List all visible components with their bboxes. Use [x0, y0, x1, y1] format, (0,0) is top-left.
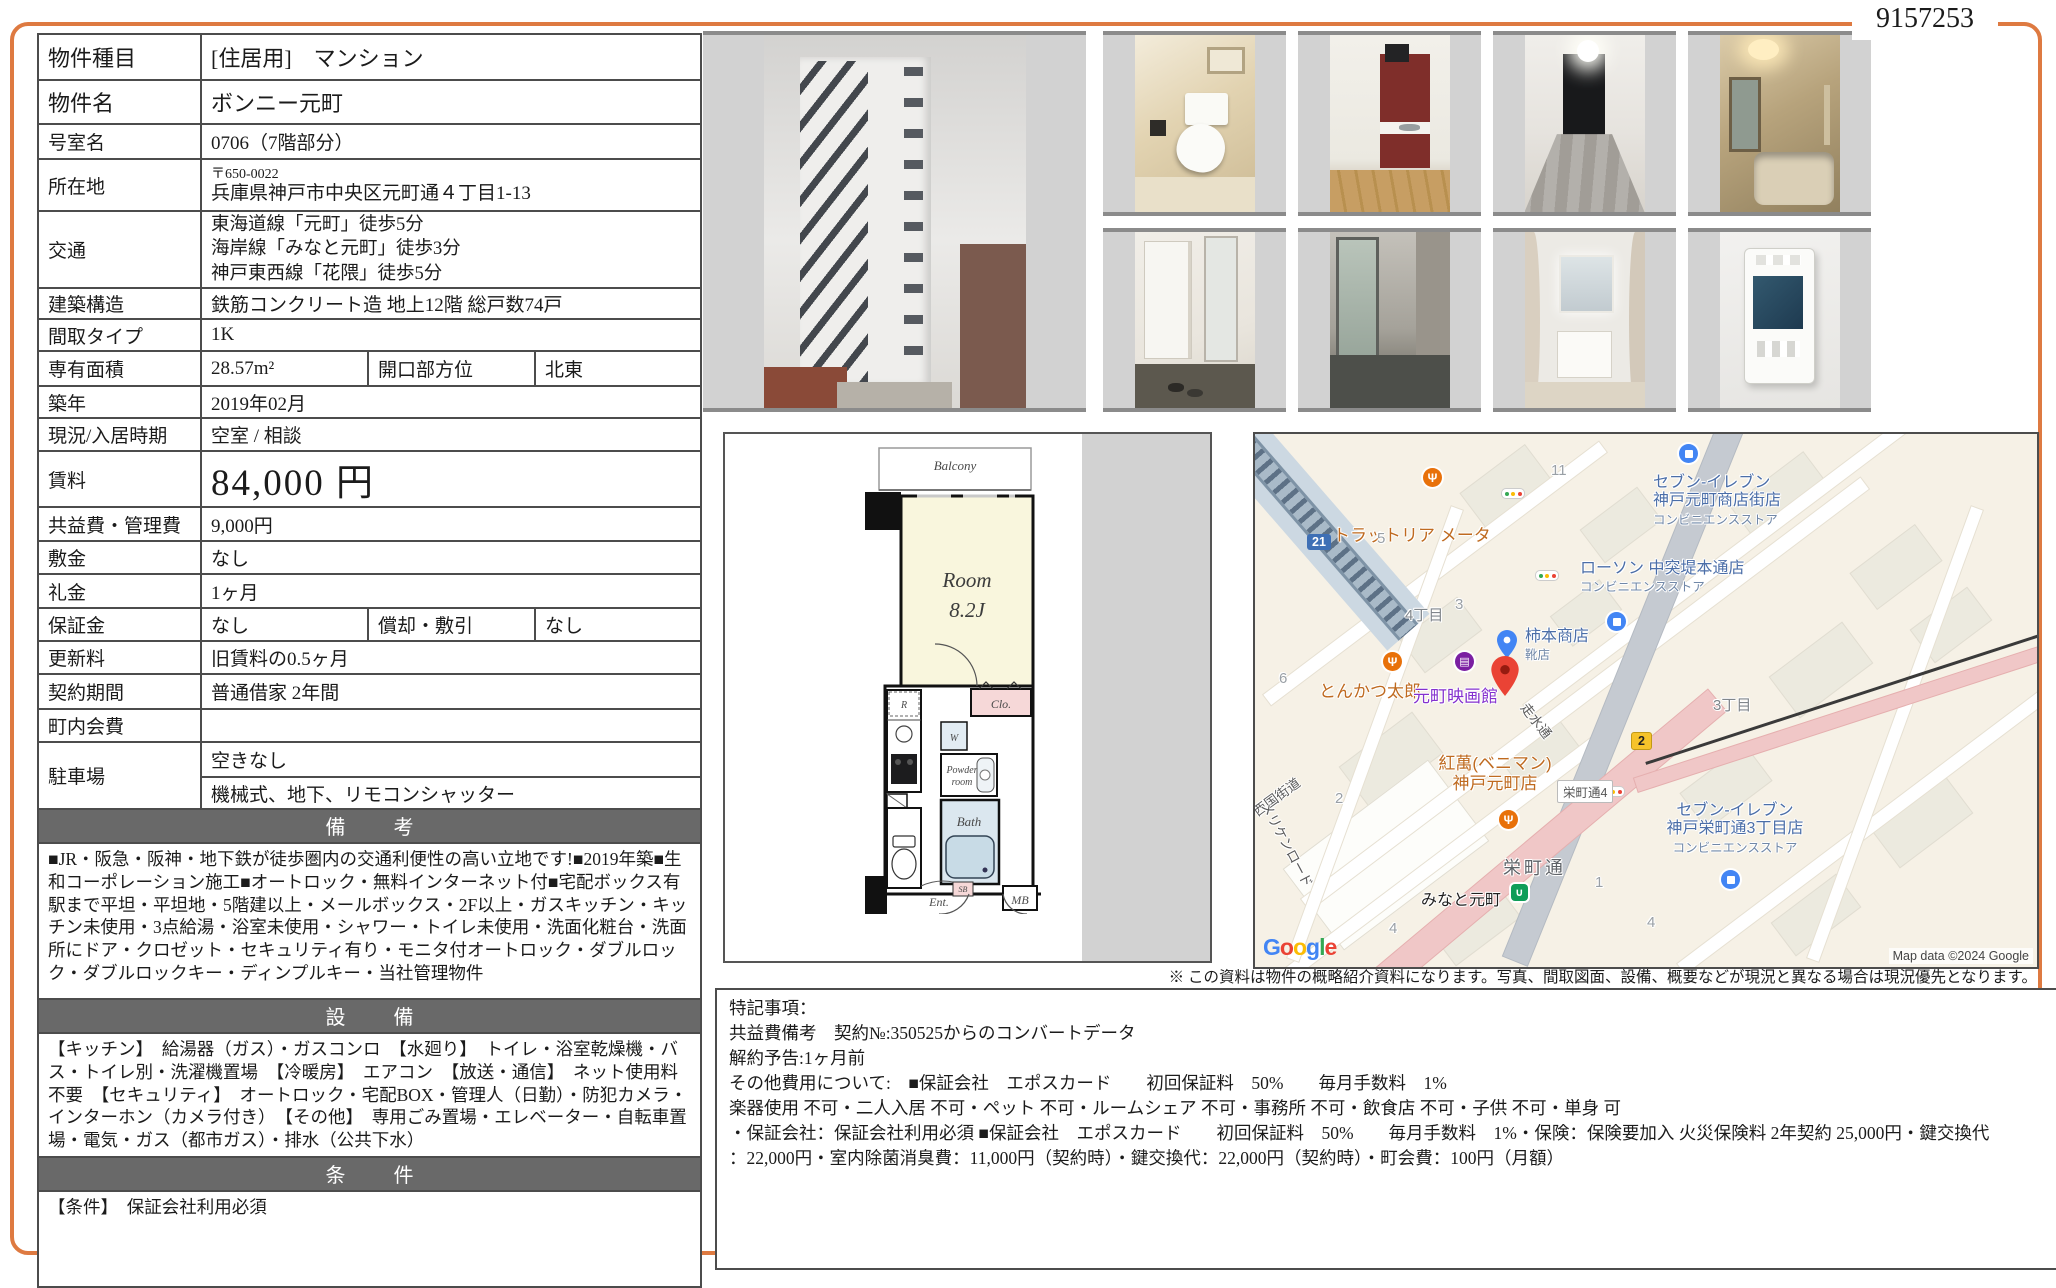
photo-intercom: [1720, 232, 1840, 408]
remarks-text: ■JR・阪急・阪神・地下鉄が徒歩圏内の交通利便性の高い立地です!■2019年築■…: [38, 843, 701, 999]
notes-line-3: その他費用について: ■保証会社 エポスカード 初回保証料 50% 毎月手数料 …: [729, 1071, 2047, 1096]
photo-frame-balcony: [1298, 228, 1481, 412]
value: [住居用] マンション: [201, 34, 701, 80]
photo-kitchen: [1330, 35, 1450, 212]
fp-room-label: Room: [942, 568, 992, 592]
transit-line-3: 神戸東西線「花隈」徒歩5分: [211, 262, 691, 287]
toilet-window: [1207, 47, 1245, 74]
rent-amount: 84,000 円: [211, 463, 375, 504]
row-contract-period: 契約期間 普通借家 2年間: [38, 674, 701, 709]
row-remarks-header: 備 考: [38, 809, 701, 843]
poi-line: ローソン 中突堤本通店: [1580, 560, 1744, 577]
notes-title: 特記事項：: [729, 996, 2047, 1021]
label: 物件名: [38, 80, 201, 124]
disclaimer-note: ※ この資料は物件の概略紹介資料になります。写真、間取図面、設備、概要などが現況…: [715, 965, 2037, 987]
district-label-3chome: 3丁目: [1713, 694, 1751, 715]
map-building: [1849, 524, 1942, 610]
wood-floor: [1525, 134, 1645, 212]
fp-powder-label-1: Powder: [945, 765, 977, 776]
row-layout-type: 間取タイプ 1K: [38, 319, 701, 351]
entrance-closet: [1144, 241, 1192, 359]
value: 東海道線「元町」徒歩5分 海岸線「みなと元町」徒歩3分 神戸東西線「花隈」徒歩5…: [201, 211, 701, 288]
row-built-year: 築年 2019年02月: [38, 386, 701, 418]
photo-frame-entrance: [1103, 228, 1286, 412]
store-icon: [1721, 870, 1740, 889]
poi-line: コンビニエンスストア: [1580, 580, 1705, 594]
notes-line-1: 共益費備考 契約№:350525からのコンバートデータ: [729, 1021, 2047, 1046]
restaurant-icon: Ψ: [1499, 810, 1518, 829]
transit-line-1: 東海道線「元町」徒歩5分: [211, 213, 691, 238]
house-roof: [764, 367, 848, 408]
transit-line-2: 海岸線「みなと元町」徒歩3分: [211, 237, 691, 262]
low-buildings: [837, 382, 952, 408]
intercom-buttons: [1757, 341, 1800, 357]
value: 1ヶ月: [201, 574, 701, 608]
cinema-icon: ▤: [1455, 652, 1474, 671]
equipment-header: 設 備: [38, 999, 701, 1033]
block-number: 11: [1551, 462, 1567, 479]
map-building: [1580, 487, 1663, 564]
label: 敷金: [38, 541, 201, 574]
notes-line-5: ・保証会社：保証会社利用必須 ■保証会社 エポスカード 初回保証料 50% 毎月…: [729, 1121, 2047, 1146]
value-2: なし: [535, 608, 701, 641]
toilet-bowl: [1171, 118, 1230, 177]
value: 〒650-0022 兵庫県神戸市中央区元町通４丁目1-13: [201, 159, 701, 211]
value-1: 空きなし: [201, 742, 701, 777]
fp-meterbox-label: MB: [1010, 893, 1029, 907]
bath-rail: [1824, 85, 1830, 145]
value: 空室 / 相談: [201, 418, 701, 451]
notes-line-4: 楽器使用 不可・二人入居 不可・ペット 不可・ルームシェア 不可・事務所 不可・…: [729, 1096, 2047, 1121]
poi-label-lawson: ローソン 中突堤本通店 コンビニエンスストア: [1580, 560, 1744, 597]
row-room-number: 号室名 0706（7階部分）: [38, 124, 701, 159]
block-number: 1: [1595, 874, 1603, 891]
conditions-header: 条 件: [38, 1157, 701, 1191]
poi-label-seven-sakaemachi: セブン-イレブン 神戸栄町通3丁目店 コンビニエンスストア: [1640, 802, 1830, 857]
building-tower: [800, 57, 931, 385]
photo-frame-powder-room: [1493, 228, 1676, 412]
traffic-light-icon: [1501, 488, 1525, 499]
value: 鉄筋コンクリート造 地上12階 総戸数74戸: [201, 288, 701, 319]
label: 賃料: [38, 451, 201, 507]
document-id: 9157253: [1852, 0, 1998, 40]
restaurant-icon: Ψ: [1383, 652, 1402, 671]
block-number: 6: [1279, 670, 1287, 687]
row-conditions-header: 条 件: [38, 1157, 701, 1191]
subway-station-icon: ∪: [1511, 884, 1528, 901]
label: 間取タイプ: [38, 319, 201, 351]
fp-entrance-label: Ent.: [928, 895, 949, 909]
value: 1K: [201, 319, 701, 351]
floorplan-drawing: Balcony Room 8.2J Clo. R W Powd: [865, 442, 1075, 914]
poi-label-seven-motomachi: セブン-イレブン 神戸元町商店街店 コンビニエンスストア: [1653, 474, 1781, 529]
store-icon: [1679, 444, 1698, 463]
fp-bath-label: Bath: [957, 814, 982, 829]
label-2: 償却・敷引: [368, 608, 535, 641]
remarks-paragraph-1: ■JR・阪急・阪神・地下鉄が徒歩圏内の交通利便性の高い立地です!■2019年築■…: [48, 849, 682, 892]
poi-line: セブン-イレブン: [1653, 474, 1770, 491]
photo-frame-intercom: [1688, 228, 1871, 412]
fp-powder-label-2: room: [952, 777, 973, 788]
building-balconies: [800, 61, 868, 383]
balcony-floor: [1330, 355, 1450, 408]
station-label-minato-motomachi: みなと元町: [1421, 886, 1501, 910]
fp-fridge-label: R: [900, 700, 907, 711]
row-structure: 建築構造 鉄筋コンクリート造 地上12階 総戸数74戸: [38, 288, 701, 319]
poi-line: 紅萬(ベニマン): [1438, 754, 1551, 773]
poi-line: 神戸元町店: [1453, 774, 1538, 793]
vanity-cabinet: [1557, 331, 1612, 379]
fp-room-size-label: 8.2J: [949, 598, 986, 622]
shop-pin-blue: [1497, 630, 1517, 658]
rent-value: 84,000 円: [201, 451, 701, 507]
remarks-header: 備 考: [38, 809, 701, 843]
value: 旧賃料の0.5ヶ月: [201, 641, 701, 674]
fp-balcony-label: Balcony: [934, 458, 977, 473]
building-windows: [904, 67, 924, 376]
row-property-type: 物件種目 [住居用] マンション: [38, 34, 701, 80]
label: 契約期間: [38, 674, 201, 709]
poi-label-kakimoto: 柿本商店 靴店: [1525, 628, 1589, 665]
photo-toilet: [1135, 35, 1255, 212]
label: 礼金: [38, 574, 201, 608]
row-key-money: 礼金 1ヶ月: [38, 574, 701, 608]
row-area: 専有面積 28.57m² 開口部方位 北東: [38, 351, 701, 386]
restaurant-icon: Ψ: [1423, 468, 1442, 487]
value-2: 機械式、地下、リモコンシャッター: [201, 777, 701, 809]
fp-shoebox-label: SB: [959, 885, 968, 894]
value: 普通借家 2年間: [201, 674, 701, 709]
row-town-fee: 町内会費: [38, 709, 701, 742]
intercom-buttons-top: [1756, 255, 1802, 266]
remarks-paragraph-2: 駅まで平坦・平坦地・5階建以上・メールボックス・2F以上・ガスキッチン・キッチン…: [48, 895, 687, 983]
street-label-sakaemachi: 栄町通: [1503, 854, 1566, 880]
row-renewal-fee: 更新料 旧賃料の0.5ヶ月: [38, 641, 701, 674]
row-equipment: 【キッチン】 給湯器（ガス）・ガスコンロ 【水廻り】 トイレ・浴室乾燥機・バス・…: [38, 1033, 701, 1157]
poi-label-tonkatsu: とんかつ太郎: [1319, 682, 1421, 702]
fp-wall-block: [865, 492, 901, 530]
poi-line: 神戸栄町通3丁目店: [1667, 820, 1804, 837]
row-address: 所在地 〒650-0022 兵庫県神戸市中央区元町通４丁目1-13: [38, 159, 701, 211]
row-property-name: 物件名 ボンニー元町: [38, 80, 701, 124]
value: 9,000円: [201, 507, 701, 541]
poi-line: 柿本商店: [1525, 628, 1589, 645]
address-text: 兵庫県神戸市中央区元町通４丁目1-13: [211, 183, 691, 205]
poi-line: コンビニエンスストア: [1673, 841, 1798, 855]
photo-balcony-corridor: [1330, 232, 1450, 408]
kitchen-floor: [1330, 170, 1450, 212]
dark-doorway: [1563, 54, 1605, 137]
value: 28.57m²: [201, 351, 368, 386]
property-table: 物件種目 [住居用] マンション 物件名 ボンニー元町 号室名 0706（7階部…: [37, 33, 702, 1288]
store-icon: [1607, 612, 1626, 631]
poi-label-cinema: 元町映画館: [1413, 682, 1498, 707]
label: 駐車場: [38, 742, 201, 809]
postal-code: 〒650-0022: [211, 167, 691, 182]
photo-bathroom: [1720, 35, 1840, 212]
conditions-text: 【条件】 保証会社利用必須: [38, 1191, 701, 1287]
notes-line-6: ：22,000円・室内除菌消臭費：11,000円（契約時）・鍵交換代：22,00…: [729, 1146, 2047, 1171]
route-badge-21: 21: [1307, 534, 1331, 550]
poi-line: 神戸元町商店街店: [1653, 492, 1781, 509]
row-guarantee: 保証金 なし 償却・敷引 なし: [38, 608, 701, 641]
label: 所在地: [38, 159, 201, 211]
poi-line: 靴店: [1525, 648, 1550, 662]
value: なし: [201, 541, 701, 574]
vanity-mirror: [1559, 255, 1613, 314]
powder-floor: [1525, 382, 1645, 408]
value: ボンニー元町: [201, 80, 701, 124]
photo-frame-toilet: [1103, 31, 1286, 216]
block-number: 2: [1335, 790, 1343, 807]
district-label-4chome: 4丁目: [1405, 604, 1443, 625]
route-badge-2: 2: [1631, 732, 1652, 750]
kitchen-cabinets: [1380, 54, 1430, 167]
row-transport: 交通 東海道線「元町」徒歩5分 海岸線「みなと元町」徒歩3分 神戸東西線「花隈」…: [38, 211, 701, 288]
location-map: Ψ Ψ ▤ Ψ 21 2 栄町通4 トラットリア メータ 5 11 セブン-イレ…: [1253, 432, 2039, 969]
block-number: 4: [1389, 920, 1397, 937]
photo-entrance: [1135, 232, 1255, 408]
block-number: 4: [1647, 914, 1655, 931]
row-rent: 賃料 84,000 円: [38, 451, 701, 507]
poi-label-trattoria: トラットリア メータ: [1333, 526, 1491, 546]
photo-room-hallway: [1525, 35, 1645, 212]
value: 0706（7階部分）: [201, 124, 701, 159]
entrance-floor: [1135, 364, 1255, 408]
row-deposit: 敷金 なし: [38, 541, 701, 574]
photo-powder-room: [1525, 232, 1645, 408]
value-2: 北東: [535, 351, 701, 386]
property-pin-red: [1491, 656, 1519, 696]
poi-line: セブン-イレブン: [1676, 802, 1793, 819]
photo-frame-hallway: [1493, 31, 1676, 216]
photo-frame-bathroom: [1688, 31, 1871, 216]
floorplan-panel: Balcony Room 8.2J Clo. R W Powd: [723, 432, 1212, 963]
value: なし: [201, 608, 368, 641]
label: 建築構造: [38, 288, 201, 319]
toilet-tank: [1185, 93, 1228, 125]
label: 専有面積: [38, 351, 201, 386]
photo-frame-building: [703, 31, 1086, 412]
label: 共益費・管理費: [38, 507, 201, 541]
block-number: 3: [1455, 596, 1463, 613]
row-remarks: ■JR・阪急・阪神・地下鉄が徒歩圏内の交通利便性の高い立地です!■2019年築■…: [38, 843, 701, 999]
poi-label-beniman: 紅萬(ベニマン) 神戸元町店: [1405, 754, 1585, 793]
bathtub: [1754, 152, 1833, 205]
label: 町内会費: [38, 709, 201, 742]
label: 築年: [38, 386, 201, 418]
paper-holder: [1150, 120, 1166, 136]
label: 交通: [38, 211, 201, 288]
shoe: [1168, 383, 1184, 392]
row-conditions: 【条件】 保証会社利用必須: [38, 1191, 701, 1287]
block-number: 5: [1377, 530, 1385, 547]
adjacent-building: [960, 244, 1026, 408]
floorplan-gray-margin: [1082, 434, 1210, 961]
fp-closet-label: Clo.: [991, 697, 1011, 711]
poi-line: コンビニエンスストア: [1653, 513, 1778, 527]
row-management-fee: 共益費・管理費 9,000円: [38, 507, 701, 541]
row-status: 現況/入居時期 空室 / 相談: [38, 418, 701, 451]
intercom-screen: [1753, 276, 1803, 329]
notes-line-2: 解約予告:1ヶ月前: [729, 1046, 2047, 1071]
bath-light: [1748, 39, 1779, 60]
equipment-text: 【キッチン】 給湯器（ガス）・ガスコンロ 【水廻り】 トイレ・浴室乾燥機・バス・…: [38, 1033, 701, 1157]
label: 号室名: [38, 124, 201, 159]
toilet-floor: [1135, 177, 1255, 212]
kitchen-sink: [1399, 124, 1419, 131]
map-attribution: Map data ©2024 Google: [1889, 948, 2033, 964]
photo-frame-kitchen: [1298, 31, 1481, 216]
traffic-light-icon: [1535, 570, 1559, 581]
value: [201, 709, 701, 742]
label: 更新料: [38, 641, 201, 674]
entrance-door: [1204, 236, 1238, 363]
photo-building-exterior: [764, 35, 1026, 408]
special-notes-box: 特記事項： 共益費備考 契約№:350525からのコンバートデータ 解約予告:1…: [715, 988, 2056, 1270]
label: 保証金: [38, 608, 201, 641]
row-parking: 駐車場 空きなし: [38, 742, 701, 777]
label-2: 開口部方位: [368, 351, 535, 386]
google-logo: Google: [1263, 934, 1336, 961]
bath-mirror: [1729, 77, 1761, 151]
label: 物件種目: [38, 34, 201, 80]
range-hood: [1385, 44, 1409, 62]
value: 2019年02月: [201, 386, 701, 418]
row-equipment-header: 設 備: [38, 999, 701, 1033]
label: 現況/入居時期: [38, 418, 201, 451]
